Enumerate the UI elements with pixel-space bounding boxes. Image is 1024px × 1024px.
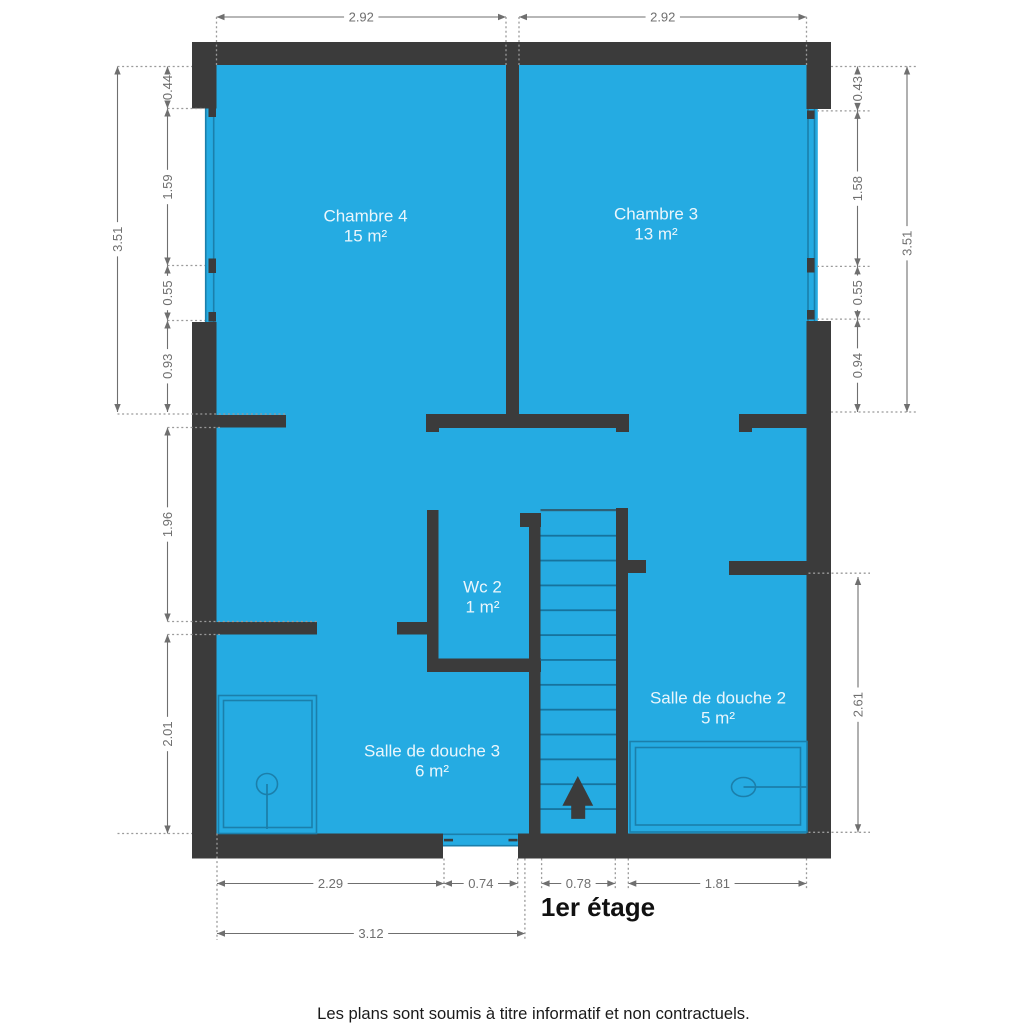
svg-text:0.78: 0.78 — [566, 876, 591, 891]
svg-text:2.92: 2.92 — [650, 10, 675, 25]
svg-text:5 m²: 5 m² — [701, 709, 735, 728]
svg-text:2.61: 2.61 — [851, 692, 866, 717]
svg-text:0.93: 0.93 — [160, 354, 175, 379]
svg-text:Chambre 4: Chambre 4 — [323, 207, 407, 226]
svg-text:Salle de douche 2: Salle de douche 2 — [650, 689, 786, 708]
svg-text:1 m²: 1 m² — [466, 598, 500, 617]
svg-text:1.59: 1.59 — [160, 174, 175, 199]
svg-text:0.55: 0.55 — [850, 280, 865, 305]
svg-text:Les plans sont soumis à titre: Les plans sont soumis à titre informatif… — [317, 1004, 750, 1023]
svg-text:1.96: 1.96 — [160, 512, 175, 537]
svg-text:15 m²: 15 m² — [344, 227, 388, 246]
svg-text:2.92: 2.92 — [349, 10, 374, 25]
svg-text:13 m²: 13 m² — [634, 225, 678, 244]
svg-text:3.51: 3.51 — [900, 231, 915, 256]
svg-text:0.55: 0.55 — [160, 280, 175, 305]
svg-text:1.81: 1.81 — [705, 876, 730, 891]
svg-text:2.29: 2.29 — [318, 876, 343, 891]
svg-text:Salle de douche 3: Salle de douche 3 — [364, 742, 500, 761]
svg-text:0.44: 0.44 — [160, 75, 175, 100]
svg-text:1er étage: 1er étage — [541, 892, 655, 922]
svg-text:Chambre 3: Chambre 3 — [614, 205, 698, 224]
svg-text:6 m²: 6 m² — [415, 762, 449, 781]
svg-text:1.58: 1.58 — [850, 176, 865, 201]
svg-text:Wc 2: Wc 2 — [463, 578, 502, 597]
svg-text:0.74: 0.74 — [468, 876, 493, 891]
svg-text:0.94: 0.94 — [850, 353, 865, 378]
svg-text:3.51: 3.51 — [110, 227, 125, 252]
svg-text:3.12: 3.12 — [358, 926, 383, 941]
svg-text:0.43: 0.43 — [850, 76, 865, 101]
svg-text:2.01: 2.01 — [160, 721, 175, 746]
